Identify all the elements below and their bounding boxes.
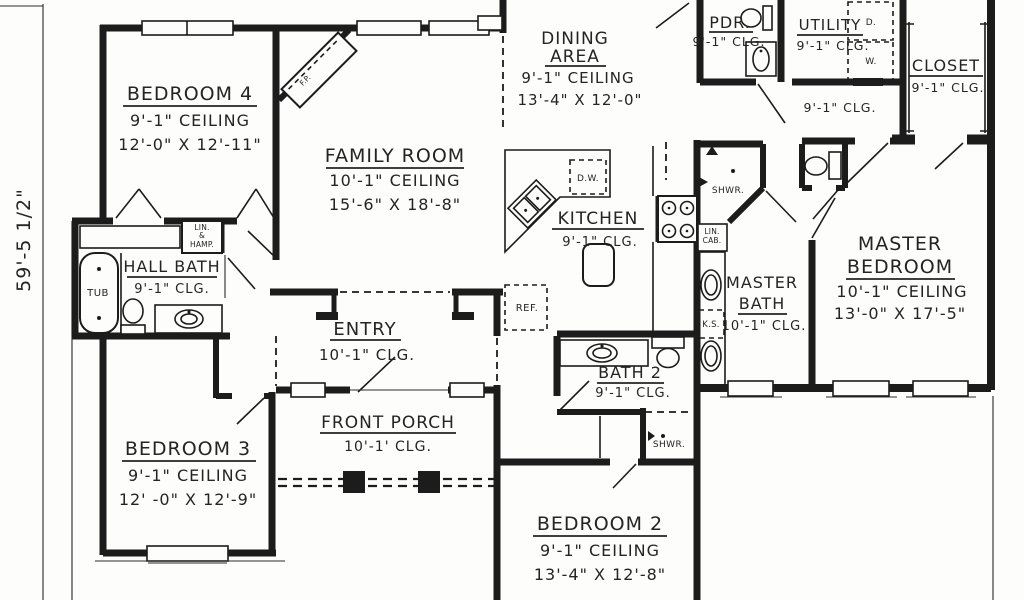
dining-ceiling-label: 9'-1" CEILING: [521, 69, 634, 87]
knee-space-label: K.S.: [702, 320, 720, 330]
master-bedroom-ceiling-label: 10'-1" CEILING: [836, 282, 967, 301]
room-labels: BEDROOM 4 9'-1" CEILING 12'-0" X 12'-11"…: [118, 13, 984, 584]
bedroom3-size-label: 12' -0" X 12'-9": [119, 490, 257, 509]
bedroom4-size-label: 12'-0" X 12'-11": [118, 135, 261, 154]
porch-post: [343, 471, 365, 493]
front-porch-name-label: FRONT PORCH: [321, 413, 455, 433]
fireplace: F.P.: [279, 30, 356, 107]
refrigerator-label: REF.: [516, 303, 539, 314]
front-porch-ceiling-label: 10'-1' CLG.: [344, 439, 432, 455]
pdr-name-label: PDR.: [709, 13, 751, 32]
porch-post: [418, 471, 440, 493]
closet-shelving: [904, 22, 990, 133]
family-room-name-label: FAMILY ROOM: [325, 145, 465, 167]
kitchen-name-label: KITCHEN: [558, 209, 639, 229]
master-shower-label: SHWR.: [712, 186, 744, 196]
lin-cab-label-2: CAB.: [703, 236, 722, 245]
utility-name-label: UTILITY: [799, 16, 862, 34]
dining-name-label: DINING: [541, 29, 609, 49]
bath2-ceiling-label: 9'-1" CLG.: [595, 386, 670, 401]
floor-plan-page: F.P.: [0, 0, 1024, 600]
kitchen-sink: [508, 180, 556, 228]
entry-niche-foot-right: [452, 312, 474, 320]
dining-name2-label: AREA: [550, 47, 600, 67]
hall-bath-name-label: HALL BATH: [123, 257, 220, 276]
porch-edge-line: [278, 479, 497, 486]
linen-label-2: HAMP.: [190, 240, 214, 249]
bedroom3-name-label: BEDROOM 3: [125, 438, 251, 460]
porch-posts: [343, 471, 440, 493]
family-room-size-label: 15'-6" X 18'-8": [329, 195, 461, 214]
bedroom4-ceiling-label: 9'-1" CEILING: [130, 111, 250, 130]
bedroom3-ceiling-label: 9'-1" CEILING: [128, 466, 248, 485]
floor-plan-drawing: F.P.: [0, 0, 1024, 600]
master-bath-name2-label: BATH: [739, 294, 785, 313]
entry-name-label: ENTRY: [333, 319, 396, 340]
hall-ceiling-label: 9'-1" CLG.: [804, 100, 877, 115]
linen-label-amp: &: [199, 231, 205, 240]
bedroom2-ceiling-label: 9'-1" CEILING: [540, 541, 660, 560]
overall-dimension-label: 59'-5 1/2": [13, 188, 35, 292]
family-room-ceiling-label: 10'-1" CEILING: [329, 171, 460, 190]
master-bath-name-label: MASTER: [726, 273, 798, 292]
lin-cab-label-1: LIN.: [704, 227, 719, 236]
washer-label: W.: [865, 57, 877, 67]
closet-name-label: CLOSET: [912, 56, 980, 75]
kitchen-island: [583, 244, 614, 286]
hall-bath-shelf: [80, 226, 180, 248]
master-wc-toilet: [805, 157, 827, 175]
bedroom2-size-label: 13'-4" X 12'-8": [534, 565, 666, 584]
master-bath-fixtures: [697, 146, 841, 385]
utility-ceiling-label: 9'-1" CLG.: [797, 38, 870, 53]
master-bedroom-size-label: 13'-0" X 17'-5": [834, 304, 966, 323]
closet-ceiling-label: 9'-1" CLG.: [912, 80, 985, 95]
master-bedroom-name2-label: BEDROOM: [847, 256, 953, 278]
dryer-label: D.: [866, 18, 877, 28]
bedroom2-name-label: BEDROOM 2: [537, 513, 663, 535]
hall-bath-ceiling-label: 9'-1" CLG.: [134, 282, 209, 297]
tub-label: TUB: [86, 288, 109, 299]
dining-size-label: 13'-4" X 12'-0": [518, 91, 643, 109]
master-bedroom-name-label: MASTER: [858, 233, 942, 255]
master-bath-ceiling-label: 10'-1" CLG.: [722, 319, 807, 334]
entry-ceiling-label: 10'-1" CLG.: [319, 346, 415, 364]
pdr-ceiling-label: 9'-1" CLG.: [693, 34, 766, 49]
hall-bath-toilet: [123, 299, 143, 323]
kitchen-ceiling-label: 9'-1" CLG.: [562, 235, 637, 250]
bath2-name-label: BATH 2: [598, 363, 662, 382]
bath2-toilet: [652, 337, 684, 348]
bedroom4-name-label: BEDROOM 4: [127, 83, 253, 105]
dishwasher-label: D.W.: [577, 174, 599, 184]
bath2-shower-label: SHWR.: [653, 440, 685, 450]
